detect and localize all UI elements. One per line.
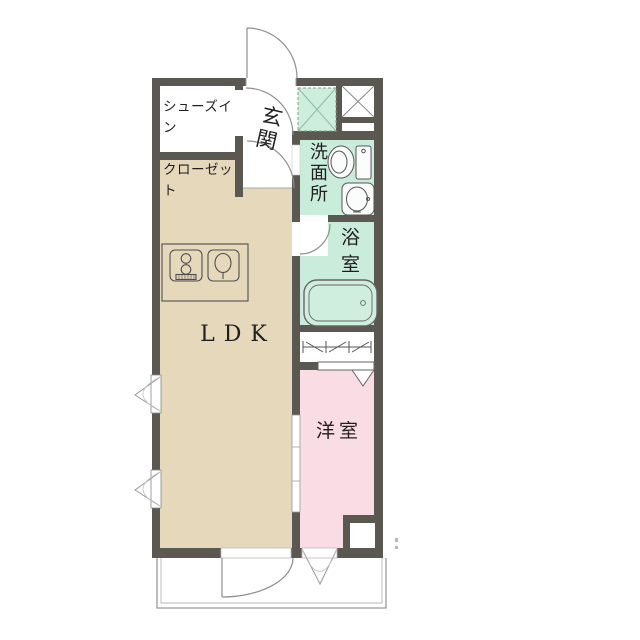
bathroom-door-area bbox=[296, 222, 328, 256]
shaft-small-box bbox=[342, 123, 374, 131]
balcony-door-swing-icon bbox=[222, 558, 293, 597]
wall-segment bbox=[291, 548, 302, 558]
wall-segment bbox=[235, 86, 243, 90]
shoes-closet-label: シューズイン クローゼット bbox=[163, 97, 245, 202]
ldk-floor bbox=[160, 158, 292, 548]
wall-segment bbox=[152, 78, 160, 375]
wall-segment bbox=[336, 78, 342, 140]
wall-segment bbox=[343, 515, 383, 523]
balcony-inner-rail bbox=[161, 558, 382, 603]
floor-plan: シューズイン クローゼット 玄関 洗面所 浴室 LDK 洋室 bbox=[0, 0, 640, 640]
washroom-door-opening bbox=[292, 145, 300, 175]
wall-segment bbox=[152, 413, 160, 470]
balcony-outer-rail bbox=[157, 558, 386, 608]
western-room-label: 洋室 bbox=[316, 416, 362, 443]
stray-marks bbox=[395, 538, 398, 549]
ldk-balcony-opening bbox=[221, 548, 291, 558]
wall-segment bbox=[152, 548, 221, 558]
floor-plan-drawing bbox=[0, 0, 640, 640]
front-door-jambs bbox=[246, 78, 296, 86]
ldk-label: LDK bbox=[200, 322, 276, 347]
sliding-door-icon bbox=[292, 415, 300, 512]
balcony bbox=[157, 558, 386, 608]
window-gap bbox=[151, 470, 161, 508]
toilet-icon bbox=[328, 146, 371, 179]
washroom-label: 洗面所 bbox=[304, 142, 330, 205]
wall-segment bbox=[292, 256, 300, 415]
washbasin-icon bbox=[342, 183, 374, 215]
front-door-swing-icon bbox=[247, 28, 297, 78]
closet-door bbox=[318, 362, 374, 370]
wall-segment bbox=[343, 523, 350, 548]
pipe-space-box bbox=[350, 523, 375, 548]
wall-segment bbox=[337, 548, 383, 558]
wall-segment bbox=[292, 362, 318, 370]
wall-segment bbox=[328, 215, 374, 222]
bathtub-icon bbox=[304, 280, 377, 326]
wall-segment bbox=[292, 131, 383, 140]
window-gap bbox=[151, 375, 161, 413]
bathroom-label: 浴室 bbox=[336, 227, 363, 281]
wall-segment bbox=[292, 512, 300, 548]
wall-segment bbox=[152, 78, 246, 86]
wall-segment bbox=[292, 140, 300, 145]
shoes-closet-label-line1: シューズイン bbox=[163, 99, 232, 136]
western-room-balcony-opening bbox=[302, 548, 337, 558]
shoes-closet-label-line2: クローゼット bbox=[163, 162, 233, 199]
wall-segment bbox=[342, 117, 374, 123]
